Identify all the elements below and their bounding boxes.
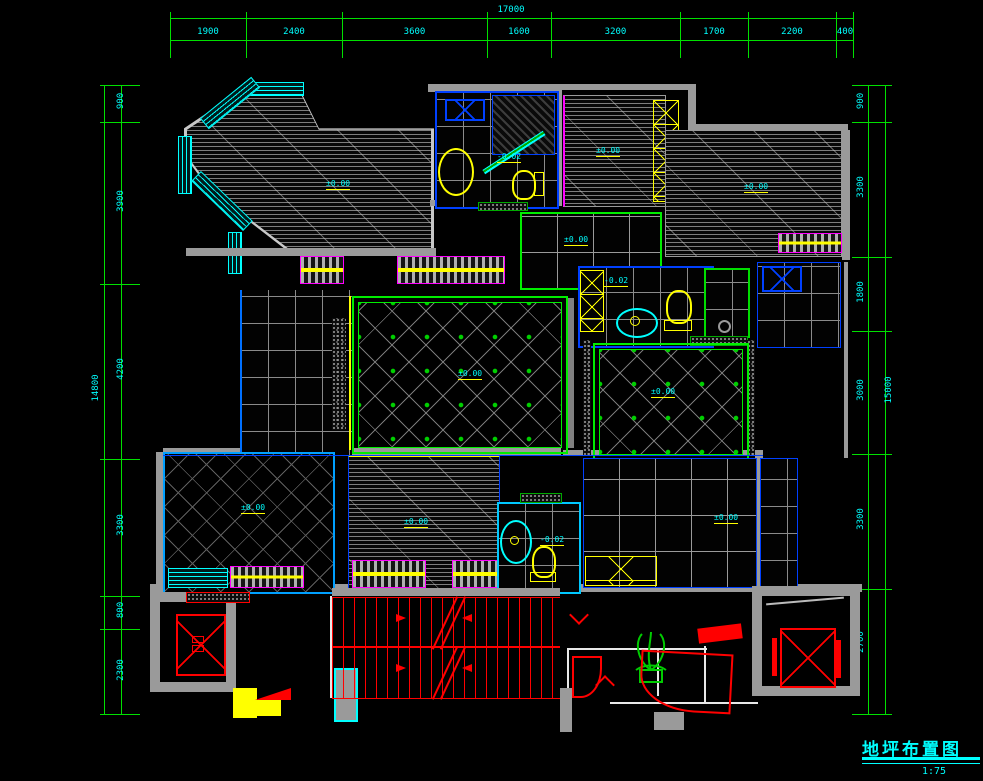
lobby-furniture bbox=[572, 656, 602, 698]
wall bbox=[332, 588, 560, 596]
bay-window bbox=[178, 136, 192, 194]
wardrobe-band bbox=[352, 560, 426, 588]
wall bbox=[553, 84, 695, 90]
bay-window bbox=[168, 568, 228, 588]
toilet-tank bbox=[664, 320, 692, 331]
dim-label: 4200 bbox=[116, 346, 126, 392]
dim-label: 1600 bbox=[487, 27, 551, 38]
stair-direction-arrow bbox=[462, 614, 472, 622]
elevator-car-icon bbox=[780, 628, 836, 688]
showerhead-icon bbox=[718, 320, 731, 333]
entry-step bbox=[257, 700, 281, 716]
dim-line bbox=[104, 85, 105, 715]
toilet-tank bbox=[530, 572, 556, 582]
elevator-rail bbox=[772, 638, 777, 676]
drawing-scale: 1:75 bbox=[922, 766, 946, 777]
dim-line bbox=[170, 18, 853, 19]
toilet-icon bbox=[512, 170, 536, 200]
dim-label: 1900 bbox=[170, 27, 246, 38]
cabinet-icon bbox=[762, 266, 802, 292]
dim-label: 3000 bbox=[856, 367, 866, 413]
dim-label: 2200 bbox=[748, 27, 836, 38]
bathtub-icon bbox=[438, 148, 474, 196]
dim-label: 3300 bbox=[856, 496, 866, 542]
door-threshold bbox=[478, 202, 528, 211]
stone-border-strip bbox=[332, 318, 346, 430]
level-label: ±0.00 bbox=[744, 183, 768, 193]
wall bbox=[654, 712, 684, 730]
dim-tick bbox=[852, 454, 892, 455]
dim-label: 2400 bbox=[246, 27, 342, 38]
floor-trim bbox=[349, 296, 351, 450]
dim-label: 3300 bbox=[116, 502, 126, 548]
dim-label: 3900 bbox=[116, 178, 126, 224]
door-threshold bbox=[520, 493, 562, 503]
entry-step bbox=[233, 688, 257, 718]
dim-label: 1800 bbox=[856, 269, 866, 315]
elevator-car-detail bbox=[192, 645, 204, 652]
cad-floorplan-canvas: 17000 1900 2400 3600 1600 3200 1700 2200… bbox=[0, 0, 983, 781]
dim-label: 3300 bbox=[856, 164, 866, 210]
floor-edge-line bbox=[163, 455, 763, 456]
level-label: ±0.00 bbox=[458, 370, 482, 380]
dim-total: 17000 bbox=[466, 5, 556, 16]
cabinet-icon bbox=[580, 270, 604, 332]
title-underline bbox=[862, 763, 980, 764]
stair-direction-arrow bbox=[396, 664, 406, 672]
cabinet-band bbox=[230, 566, 304, 588]
sink-drain bbox=[510, 536, 519, 545]
dim-label: 400 bbox=[833, 27, 857, 38]
dim-label: 2300 bbox=[116, 647, 126, 693]
dim-tick bbox=[852, 257, 892, 258]
dim-label: 900 bbox=[856, 78, 866, 124]
dim-tick bbox=[852, 714, 892, 715]
wardrobe-icon bbox=[585, 556, 657, 586]
toilet-tank bbox=[534, 172, 544, 196]
level-label: ±0.00 bbox=[596, 147, 620, 157]
level-label: ±0.00 bbox=[404, 518, 428, 528]
level-label: ±0.00 bbox=[326, 180, 350, 190]
room-family bbox=[593, 343, 749, 461]
dim-tick bbox=[100, 284, 140, 285]
shoe-cabinet bbox=[697, 623, 743, 643]
dim-line bbox=[170, 40, 853, 41]
wardrobe-band bbox=[452, 560, 498, 588]
dim-tick bbox=[100, 714, 140, 715]
closet-column bbox=[760, 458, 798, 588]
cabinet-band bbox=[397, 256, 505, 284]
elevator-rail bbox=[836, 640, 841, 678]
wall bbox=[844, 262, 848, 458]
wall bbox=[186, 248, 436, 256]
dim-total: 14800 bbox=[91, 365, 101, 411]
dim-label: 1700 bbox=[680, 27, 748, 38]
level-label: -0.02 bbox=[540, 536, 564, 546]
elevator-threshold bbox=[186, 592, 250, 603]
elevator-car-detail bbox=[192, 636, 204, 643]
level-label: -0.02 bbox=[497, 153, 521, 163]
dim-label: 3200 bbox=[551, 27, 680, 38]
level-label: ±0.00 bbox=[714, 514, 738, 524]
cabinet-band bbox=[300, 256, 344, 284]
stair-direction-arrow bbox=[396, 614, 406, 622]
dim-label: 800 bbox=[116, 587, 126, 633]
dim-label: 900 bbox=[116, 78, 126, 124]
stair-direction-arrow bbox=[462, 664, 472, 672]
toilet-icon bbox=[666, 290, 692, 324]
stair-landing-line bbox=[332, 646, 560, 648]
dim-tick bbox=[100, 459, 140, 460]
dim-tick bbox=[852, 331, 892, 332]
level-label: ±0.00 bbox=[564, 236, 588, 246]
stair-wall-line bbox=[330, 596, 332, 698]
wall bbox=[560, 688, 572, 732]
cabinet-icon bbox=[445, 99, 485, 121]
dim-line bbox=[868, 85, 869, 715]
level-label: ±0.00 bbox=[651, 388, 675, 398]
cabinet-band bbox=[778, 233, 842, 253]
wall bbox=[842, 130, 850, 260]
sink-drain bbox=[630, 316, 640, 326]
dim-label: 3600 bbox=[342, 27, 487, 38]
tile-floor bbox=[599, 349, 743, 455]
level-label: ±0.00 bbox=[241, 504, 265, 514]
stone-border-strip bbox=[583, 340, 591, 456]
stair-direction-mark bbox=[569, 605, 589, 625]
dim-total: 15000 bbox=[884, 367, 894, 413]
level-label: -0.02 bbox=[604, 277, 628, 287]
entry-ramp bbox=[255, 688, 291, 700]
lobby-furniture bbox=[638, 650, 733, 715]
title-underline bbox=[862, 757, 980, 760]
